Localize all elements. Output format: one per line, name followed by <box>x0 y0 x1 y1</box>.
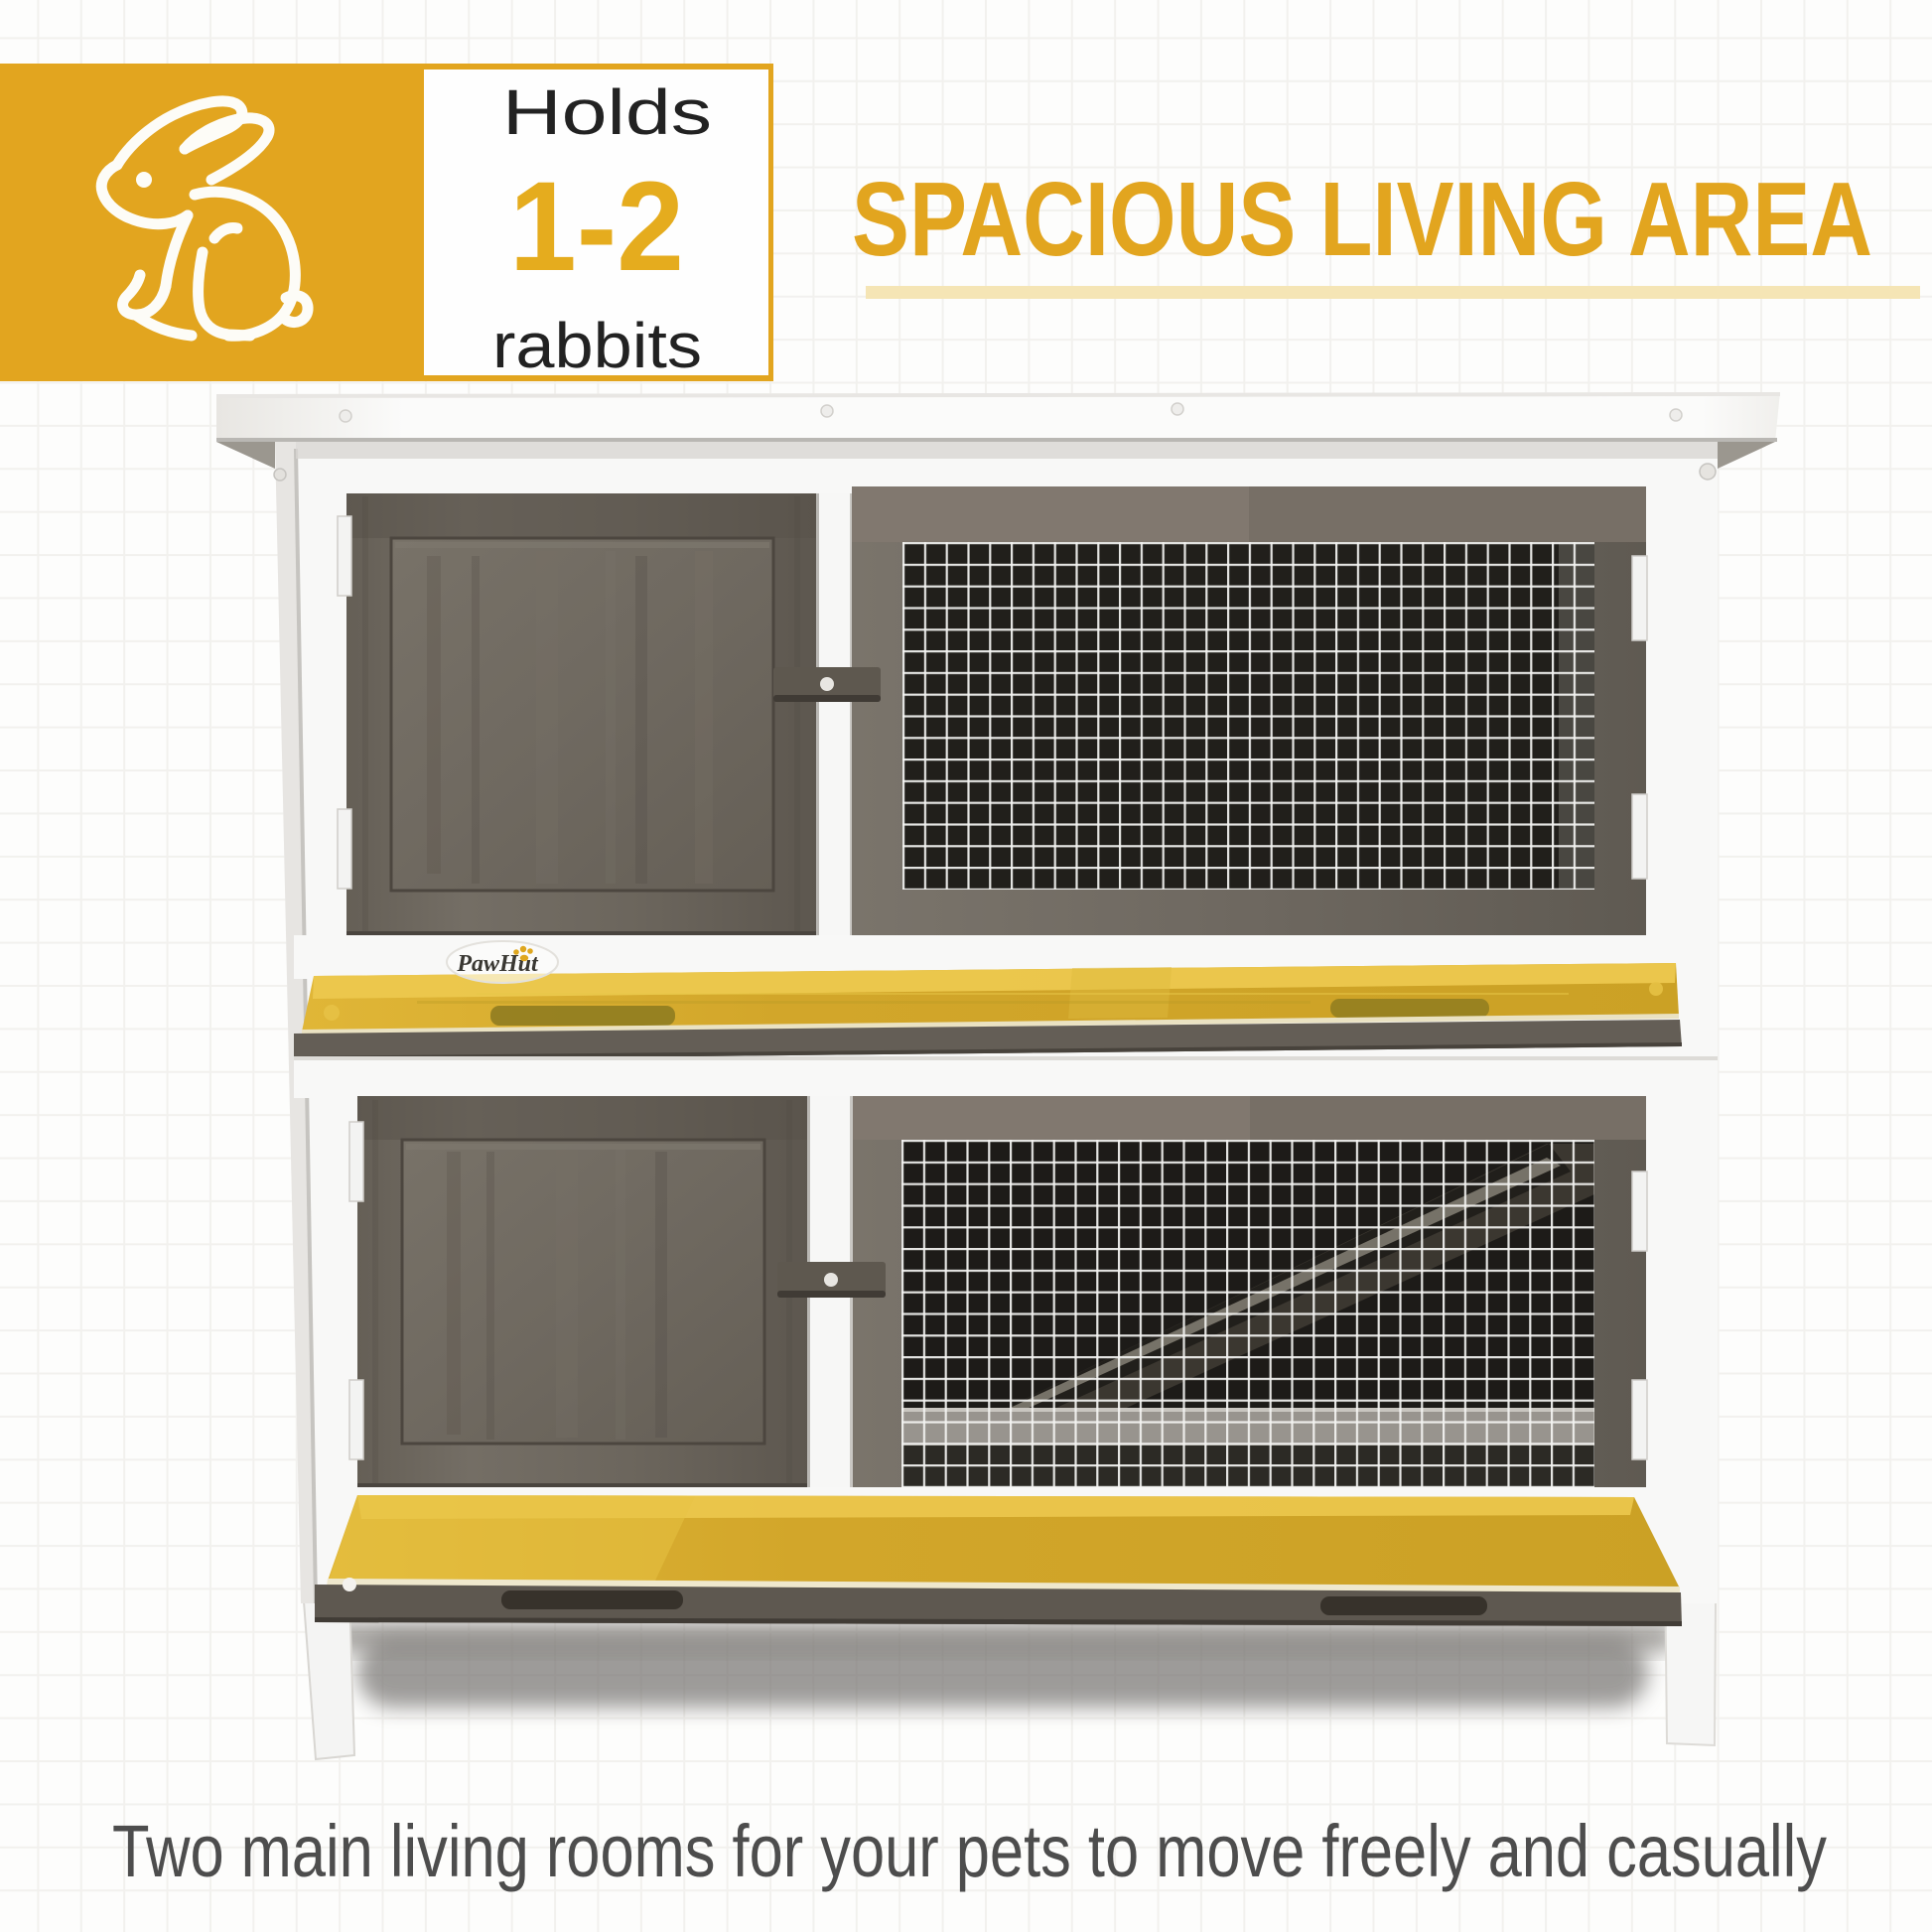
svg-text:1-2: 1-2 <box>509 156 684 298</box>
svg-text:Holds: Holds <box>502 76 712 148</box>
svg-text:rabbits: rabbits <box>492 310 702 381</box>
svg-text:PawHut: PawHut <box>456 951 539 977</box>
svg-text:SPACIOUS LIVING AREA: SPACIOUS LIVING AREA <box>852 161 1872 278</box>
svg-text:Two main living rooms for your: Two main living rooms for your pets to m… <box>112 1810 1827 1892</box>
